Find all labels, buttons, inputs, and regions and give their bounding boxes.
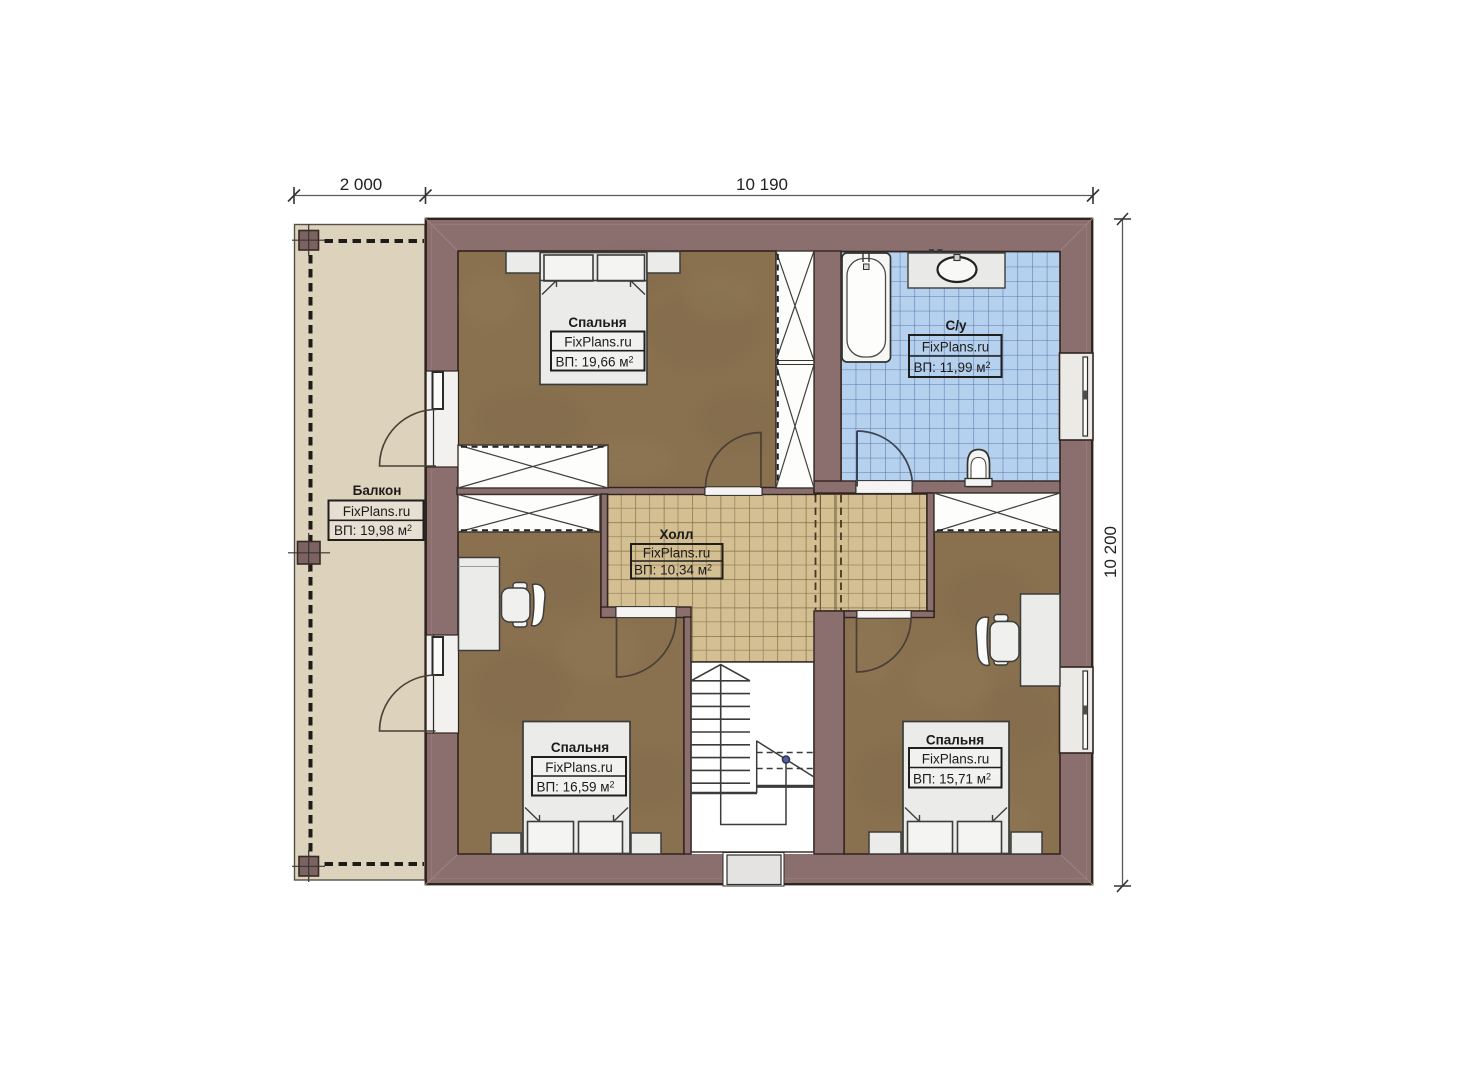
svg-text:FixPlans.ru: FixPlans.ru — [922, 340, 990, 355]
svg-text:FixPlans.ru: FixPlans.ru — [564, 335, 632, 350]
svg-text:ВП: 19,66 м2: ВП: 19,66 м2 — [555, 355, 633, 370]
svg-text:FixPlans.ru: FixPlans.ru — [643, 546, 711, 561]
svg-text:Спальня: Спальня — [926, 733, 984, 748]
svg-text:10 200: 10 200 — [1101, 526, 1120, 578]
svg-text:FixPlans.ru: FixPlans.ru — [343, 504, 411, 519]
svg-text:2 000: 2 000 — [340, 175, 383, 194]
svg-text:10 190: 10 190 — [736, 175, 788, 194]
svg-text:ВП: 11,99 м2: ВП: 11,99 м2 — [913, 360, 990, 375]
svg-text:ВП: 19,98 м2: ВП: 19,98 м2 — [334, 523, 412, 538]
svg-text:FixPlans.ru: FixPlans.ru — [922, 752, 990, 767]
svg-text:Холл: Холл — [660, 527, 694, 542]
svg-text:Спальня: Спальня — [551, 740, 609, 755]
svg-text:FixPlans.ru: FixPlans.ru — [545, 760, 613, 775]
svg-text:ВП: 16,59 м2: ВП: 16,59 м2 — [536, 780, 614, 795]
svg-text:Спальня: Спальня — [568, 315, 626, 330]
svg-text:ВП: 10,34 м2: ВП: 10,34 м2 — [634, 563, 712, 578]
svg-text:ВП: 15,71 м2: ВП: 15,71 м2 — [913, 772, 991, 787]
svg-text:Балкон: Балкон — [353, 483, 402, 498]
svg-text:С/у: С/у — [945, 318, 967, 333]
